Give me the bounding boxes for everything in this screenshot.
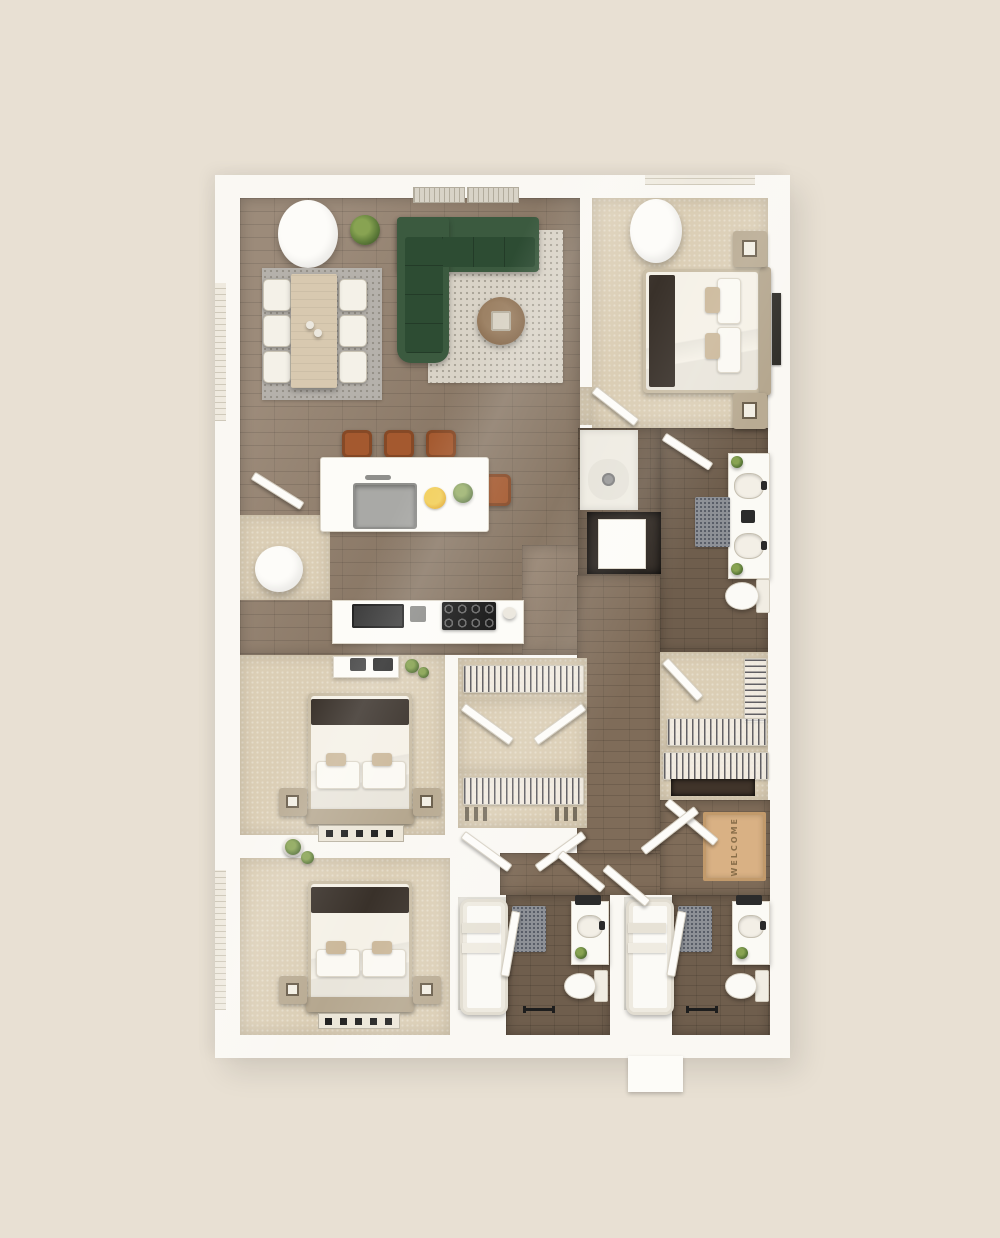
patio-wall-stub: [628, 1056, 683, 1092]
bedroom2-plant-1: [405, 659, 419, 673]
left-wall-window-bedroom3: [215, 870, 226, 1010]
top-wall-window-bedroom1: [645, 175, 755, 185]
faucet-1: [761, 481, 767, 490]
hall-closet1-rod: [463, 665, 584, 693]
walk-in-shower: [580, 430, 638, 510]
desk-monitors: [373, 658, 393, 671]
floor-plan-canvas: { "labels": { "doormat": "WELCOME" }, "p…: [0, 0, 1000, 1238]
vanity-sink-2: [734, 533, 764, 559]
bathA-towel: [462, 923, 500, 933]
nook-vase: [255, 546, 303, 592]
round-column-bedroom1: [630, 199, 682, 263]
bed3-nightstand: [413, 976, 441, 1004]
dining-chair: [339, 279, 367, 311]
bed3-slipper-rug: [318, 1013, 400, 1029]
welcome-doormat: WELCOME: [703, 812, 766, 881]
sofa-chaise-cushions: [405, 237, 443, 353]
bed3-accent-pillow: [372, 941, 392, 954]
vanity-plant-1: [731, 456, 743, 468]
bed3-accent-pillow: [326, 941, 346, 954]
counter-appliance-dark: [352, 604, 404, 628]
master-bath-mat: [695, 497, 730, 547]
linen-closet-rod: [663, 752, 769, 780]
bed2-slipper-rug: [318, 825, 404, 842]
bathA-tub: [460, 899, 508, 1015]
bathA-faucet: [599, 921, 605, 930]
counter-item: [503, 607, 516, 619]
bed2-throw-blanket: [311, 699, 409, 725]
espresso-machine: [410, 606, 426, 622]
bed2-accent-pillow: [326, 753, 346, 766]
closet2-door-left: [460, 831, 512, 872]
bar-stool: [384, 430, 414, 458]
faucet-2: [761, 541, 767, 550]
bedroom1-door-opening: [580, 387, 592, 425]
bed1-pillow: [717, 327, 741, 373]
doormat-text: WELCOME: [730, 817, 739, 876]
bathA-towel-bar: [523, 1008, 555, 1015]
table-decor: [306, 321, 314, 329]
bed1-pillow: [717, 278, 741, 324]
potted-plant-dining: [350, 215, 380, 245]
closet-hanging-rod-bottom: [667, 718, 767, 746]
bathB-towel-bar: [686, 1008, 718, 1015]
bathB-towel: [628, 943, 666, 953]
bathB-tub: [626, 899, 674, 1015]
bed1-accent-pillow: [705, 287, 720, 313]
island-plant: [453, 483, 473, 503]
bed3-headboard: [306, 997, 414, 1012]
cooktop: [442, 602, 496, 630]
bed3-nightstand: [279, 976, 307, 1004]
bed2-accent-pillow: [372, 753, 392, 766]
island-sink: [353, 483, 417, 529]
bathB-toilet: [725, 973, 757, 999]
bathB-counter-item: [736, 895, 762, 905]
shower-drain: [602, 473, 615, 486]
island-faucet: [365, 475, 391, 480]
top-window-2: [467, 187, 519, 203]
closet2-shoes: [555, 807, 579, 821]
bar-stool: [342, 430, 372, 458]
bathA-towel: [462, 943, 500, 953]
bed2-nightstand: [279, 788, 307, 816]
bed1-nightstand: [733, 231, 767, 267]
bedroom1-wall-art: [772, 293, 781, 365]
bathB-faucet: [760, 921, 766, 930]
bed2-headboard: [306, 809, 414, 824]
bathB-plant: [736, 947, 748, 959]
bedroom2-plant-2: [418, 667, 429, 678]
closet-hanging-rod-right: [744, 658, 767, 722]
dining-chair: [263, 351, 291, 383]
bed3-throw-blanket: [311, 887, 409, 913]
bed2-nightstand: [413, 788, 441, 816]
vanity-tray: [741, 510, 755, 523]
dining-chair: [263, 279, 291, 311]
bathA-toilet: [564, 973, 596, 999]
round-column-living: [278, 200, 338, 268]
master-toilet: [725, 582, 759, 610]
linen-closet-shelf: [671, 779, 755, 796]
bathA-plant: [575, 947, 587, 959]
hall-closet2-rod: [463, 777, 584, 805]
bathB-towel: [628, 923, 666, 933]
dining-chair: [339, 351, 367, 383]
bar-stool: [426, 430, 456, 458]
vanity-sink-1: [734, 473, 764, 499]
bedroom3-plant-2: [301, 851, 314, 864]
top-window-1: [413, 187, 465, 203]
bathB-toilet-tank: [755, 970, 769, 1002]
bed1-nightstand: [733, 393, 767, 429]
bathA-counter-item: [575, 895, 601, 905]
left-wall-window-dining: [215, 283, 226, 421]
dining-chair: [339, 315, 367, 347]
bed1-headboard: [760, 267, 771, 395]
bed1-throw-blanket: [649, 275, 675, 387]
desk-laptop: [350, 658, 366, 671]
bed1-accent-pillow: [705, 333, 720, 359]
fruit-bowl: [424, 487, 446, 509]
bedroom3-plant-1: [285, 839, 301, 855]
closet2-shoes: [465, 807, 489, 821]
washer-dryer-unit: [598, 519, 646, 569]
dining-chair: [263, 315, 291, 347]
bathA-toilet-tank: [594, 970, 608, 1002]
vanity-plant-2: [731, 563, 743, 575]
apartment-floor-plan: WELCOME: [215, 175, 790, 1058]
table-decor: [314, 329, 322, 337]
round-coffee-table: [477, 297, 525, 345]
